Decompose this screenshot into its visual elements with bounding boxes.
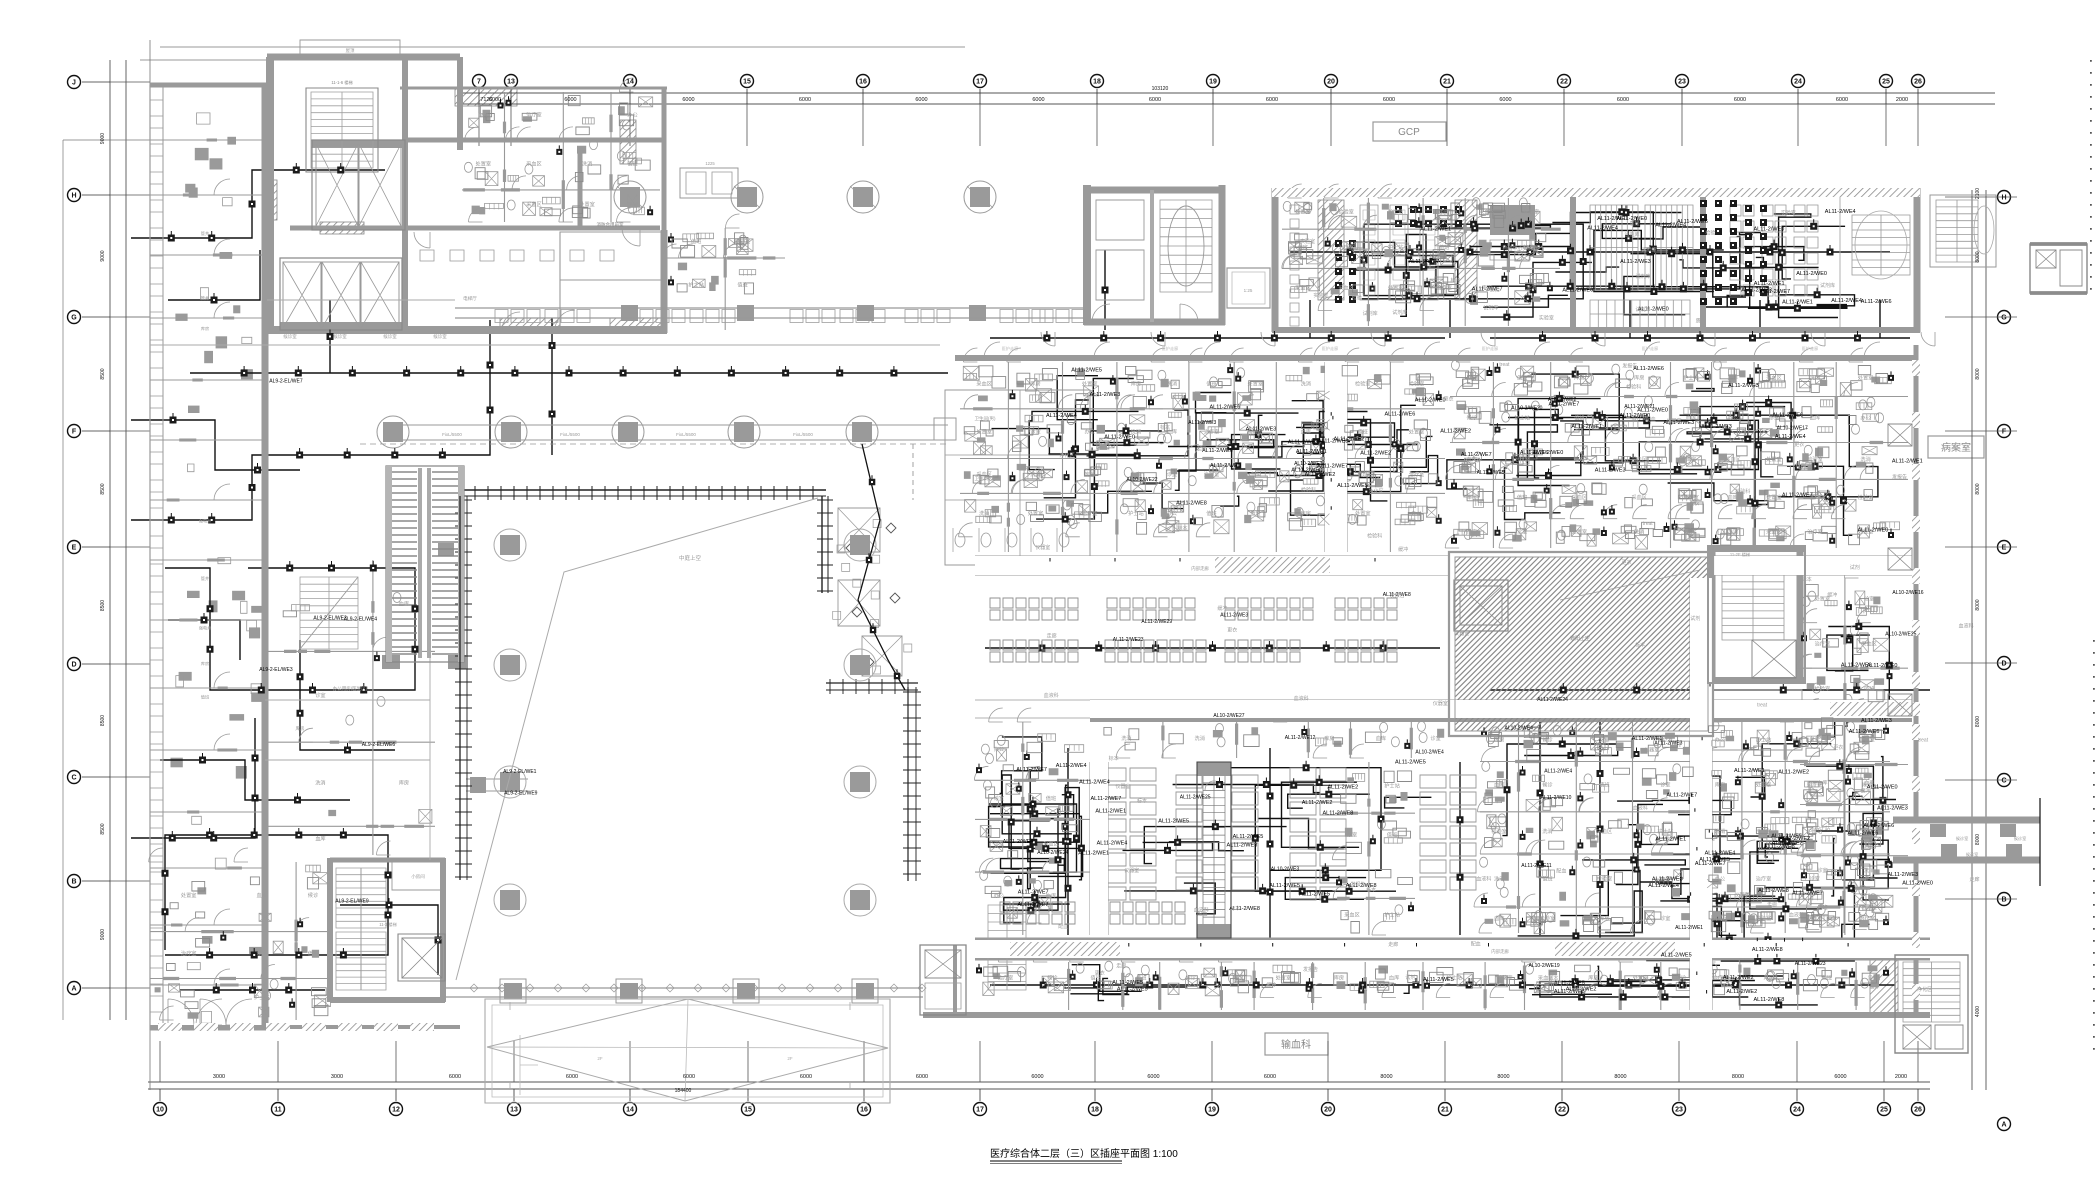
- svg-text:处置室: 处置室: [1355, 509, 1371, 517]
- svg-text:中庭上空: 中庭上空: [679, 554, 702, 562]
- svg-text:AL11-2/WE12: AL11-2/WE12: [1285, 735, 1316, 741]
- svg-text:AL11-2/WE6: AL11-2/WE6: [1848, 831, 1879, 837]
- svg-text:库房: 库房: [1715, 781, 1725, 789]
- svg-text:库房: 库房: [1030, 379, 1040, 387]
- svg-text:AL11-2/WE8: AL11-2/WE8: [1288, 440, 1319, 446]
- svg-text:检验: 检验: [1430, 253, 1440, 260]
- svg-text:AL11-2/WE4: AL11-2/WE4: [1056, 763, 1087, 769]
- svg-text:AL10-2/WE3: AL10-2/WE3: [1271, 867, 1300, 873]
- svg-text:AL11-2/WE4: AL11-2/WE4: [1544, 769, 1572, 775]
- svg-text:21: 21: [1441, 1107, 1449, 1114]
- svg-text:AL11-2/WE1: AL11-2/WE1: [1420, 227, 1451, 233]
- svg-text:AL11-2/WE1: AL11-2/WE1: [1782, 300, 1813, 306]
- svg-text:treat: treat: [1499, 362, 1510, 368]
- svg-text:库房: 库房: [627, 200, 637, 208]
- svg-text:AL11-2/WE5: AL11-2/WE5: [1477, 470, 1505, 476]
- svg-text:3000: 3000: [213, 1074, 225, 1080]
- svg-text:洗消: 洗消: [315, 778, 325, 786]
- svg-text:AL10-2/WE2: AL10-2/WE2: [1548, 397, 1577, 403]
- svg-text:治疗室: 治疗室: [526, 110, 542, 118]
- svg-text:AL11-2/WE2: AL11-2/WE2: [1334, 437, 1365, 443]
- svg-text:15: 15: [743, 79, 751, 86]
- svg-text:AL11-2/WE1: AL11-2/WE1: [1571, 424, 1602, 430]
- svg-text:候诊: 候诊: [1467, 414, 1478, 422]
- svg-text:库房: 库房: [1634, 373, 1644, 381]
- svg-text:洗消: 洗消: [1860, 455, 1870, 463]
- svg-text:8500: 8500: [100, 368, 106, 379]
- svg-text:诊室: 诊室: [1660, 914, 1670, 922]
- svg-text:AL11-2/WE4: AL11-2/WE4: [1046, 413, 1077, 419]
- svg-text:8000: 8000: [1975, 251, 1981, 262]
- svg-text:AL11-2/WE1: AL11-2/WE1: [1754, 281, 1785, 287]
- svg-text:处置室: 处置室: [1858, 373, 1874, 381]
- svg-text:配血: 配血: [1471, 941, 1481, 948]
- svg-text:AL11-2/WE8: AL11-2/WE8: [1764, 844, 1795, 850]
- svg-text:标本: 标本: [1177, 525, 1187, 532]
- svg-text:血液科: 血液科: [1959, 622, 1974, 629]
- svg-text:GCP: GCP: [1398, 127, 1420, 138]
- svg-text:候诊室: 候诊室: [2014, 835, 2027, 842]
- svg-text:标本: 标本: [1635, 642, 1645, 649]
- svg-text:C: C: [2001, 778, 2006, 785]
- svg-text:缓冲: 缓冲: [1869, 983, 1879, 990]
- svg-text:候诊室: 候诊室: [433, 333, 447, 340]
- svg-text:AL11-2/WE23: AL11-2/WE23: [1113, 637, 1144, 643]
- svg-text:6000: 6000: [683, 1074, 695, 1080]
- svg-text:AL11-2/WE0: AL11-2/WE0: [1210, 463, 1241, 469]
- svg-text:血库: 血库: [1301, 428, 1311, 436]
- svg-text:仪器室: 仪器室: [1115, 783, 1130, 790]
- svg-text:更衣: 更衣: [1689, 500, 1699, 507]
- svg-text:候诊室: 候诊室: [1966, 851, 1979, 858]
- svg-text:诊室: 诊室: [1660, 781, 1670, 789]
- svg-text:AL10-2/WE22: AL10-2/WE22: [1126, 477, 1157, 483]
- svg-text:配血: 配血: [1197, 911, 1207, 918]
- svg-text:AL11-2/WE29: AL11-2/WE29: [1141, 619, 1172, 625]
- svg-text:16: 16: [859, 79, 867, 86]
- svg-text:更衣: 更衣: [1622, 559, 1632, 566]
- svg-text:17: 17: [976, 79, 984, 86]
- svg-text:试剂库: 试剂库: [1635, 306, 1650, 313]
- svg-text:仪器室: 仪器室: [1433, 700, 1448, 707]
- svg-text:8000: 8000: [1497, 1074, 1509, 1080]
- svg-text:检验科: 检验科: [1367, 532, 1382, 539]
- svg-text:采血区: 采血区: [1861, 639, 1877, 647]
- svg-text:AL11-2/WE2: AL11-2/WE2: [1726, 989, 1757, 995]
- svg-text:值班: 值班: [308, 949, 318, 957]
- svg-text:库房: 库房: [296, 725, 305, 732]
- svg-text:AL11-2/WE4: AL11-2/WE4: [1775, 434, 1806, 440]
- svg-text:库房: 库房: [1588, 974, 1598, 982]
- svg-text:试剂: 试剂: [1850, 564, 1860, 571]
- svg-text:采血区: 采血区: [1597, 827, 1613, 835]
- svg-text:试剂库: 试剂库: [1820, 282, 1835, 289]
- svg-text:配血: 配血: [1646, 416, 1656, 423]
- svg-text:候诊: 候诊: [1047, 974, 1058, 982]
- svg-text:护士站: 护士站: [1384, 782, 1400, 790]
- svg-text:处置室: 处置室: [1633, 974, 1649, 982]
- svg-text:洗消: 洗消: [1864, 866, 1874, 874]
- svg-text:值班: 值班: [1387, 830, 1397, 838]
- svg-text:试剂库: 试剂库: [1502, 221, 1517, 228]
- svg-text:AL11-2/WE0: AL11-2/WE0: [1104, 435, 1135, 441]
- svg-text:候诊: 候诊: [1817, 733, 1828, 741]
- svg-text:值班: 值班: [1206, 509, 1216, 517]
- svg-text:6000: 6000: [1032, 97, 1044, 103]
- svg-text:发报告: 发报告: [1303, 966, 1318, 973]
- svg-text:检验室: 检验室: [1756, 914, 1772, 922]
- svg-text:采血区: 采血区: [1766, 373, 1782, 381]
- svg-text:医护走廊: 医护走廊: [1802, 345, 1819, 352]
- svg-text:C: C: [71, 775, 76, 782]
- svg-text:AL11-2/WE3: AL11-2/WE3: [1595, 468, 1626, 474]
- svg-text:检验: 检验: [1450, 277, 1460, 284]
- svg-text:AL11-2/WE6: AL11-2/WE6: [1385, 411, 1416, 417]
- svg-text:走廊: 走廊: [1388, 941, 1398, 948]
- svg-text:AL11-2/WE7: AL11-2/WE7: [1695, 861, 1726, 867]
- svg-text:值班: 值班: [1517, 373, 1527, 381]
- svg-text:8500: 8500: [100, 483, 106, 494]
- svg-text:9000: 9000: [100, 250, 106, 261]
- svg-text:发报告: 发报告: [1622, 362, 1637, 369]
- svg-text:AL11-2/WE7: AL11-2/WE7: [1759, 289, 1790, 295]
- svg-text:AL11-2/WE6: AL11-2/WE6: [1202, 448, 1233, 454]
- svg-text:1225: 1225: [705, 161, 715, 166]
- svg-text:采血区: 采血区: [1725, 455, 1741, 463]
- svg-text:处置室: 处置室: [1409, 428, 1425, 436]
- svg-text:24: 24: [1794, 79, 1802, 86]
- svg-text:库房: 库房: [1324, 734, 1334, 742]
- svg-text:20: 20: [1324, 1107, 1332, 1114]
- svg-text:候诊室: 候诊室: [1956, 835, 1969, 842]
- svg-text:AL11-2/WE3: AL11-2/WE3: [1887, 872, 1918, 878]
- svg-text:treat: treat: [1643, 521, 1654, 527]
- svg-text:办公: 办公: [1411, 509, 1421, 517]
- svg-text:实验室: 实验室: [1642, 247, 1657, 254]
- svg-text:洗消: 洗消: [582, 159, 592, 167]
- svg-text:洗消: 洗消: [979, 509, 989, 517]
- svg-text:治疗室: 治疗室: [1436, 284, 1452, 292]
- svg-text:AL9-2-EL/WE3: AL9-2-EL/WE3: [259, 667, 293, 673]
- svg-text:值班: 值班: [1439, 243, 1449, 251]
- svg-text:AL11-2/WE2: AL11-2/WE2: [1302, 800, 1333, 806]
- svg-text:检验室: 检验室: [1409, 379, 1425, 387]
- svg-text:内部走廊: 内部走廊: [1191, 565, 1209, 572]
- svg-text:诊室: 诊室: [1686, 527, 1696, 535]
- svg-text:诊室: 诊室: [1809, 875, 1819, 883]
- svg-text:AL10-2/WE3: AL10-2/WE3: [1294, 461, 1323, 467]
- svg-text:AL11-2/WE7: AL11-2/WE7: [1018, 902, 1049, 908]
- svg-text:走廊: 走廊: [1767, 902, 1777, 909]
- svg-text:质检: 质检: [1630, 220, 1640, 227]
- svg-text:AL11-2/WE0: AL11-2/WE0: [1858, 527, 1889, 533]
- svg-text:洗消: 洗消: [1030, 470, 1040, 478]
- svg-text:诊室: 诊室: [1864, 594, 1874, 602]
- svg-text:AL11-2/WE5: AL11-2/WE5: [1337, 483, 1368, 489]
- svg-text:办公: 办公: [1860, 414, 1870, 422]
- svg-text:AL11-2/WE5: AL11-2/WE5: [1395, 760, 1426, 766]
- svg-text:E: E: [2002, 545, 2007, 552]
- svg-text:AL11-2/WE4: AL11-2/WE4: [1648, 883, 1679, 889]
- svg-text:走廊: 走廊: [1116, 962, 1126, 969]
- svg-text:AL9-2-EL/WE9: AL9-2-EL/WE9: [335, 899, 369, 905]
- svg-text:输血科: 输血科: [1281, 1038, 1311, 1051]
- svg-text:AL10-2/WE20: AL10-2/WE20: [1511, 406, 1542, 412]
- svg-text:AL11-2/WE21: AL11-2/WE21: [1624, 404, 1655, 410]
- svg-text:采血区: 采血区: [1479, 208, 1495, 216]
- svg-text:实验室: 实验室: [1300, 238, 1315, 245]
- svg-text:缓冲: 缓冲: [1827, 592, 1837, 599]
- svg-text:AL11-2/WE3: AL11-2/WE3: [1701, 424, 1732, 430]
- svg-text:办公: 办公: [1728, 414, 1738, 422]
- svg-text:洗消: 洗消: [1195, 734, 1205, 742]
- svg-text:8000: 8000: [1380, 1074, 1392, 1080]
- svg-text:3000: 3000: [331, 1074, 343, 1080]
- svg-text:更衣: 更衣: [1095, 970, 1105, 977]
- svg-text:值班: 值班: [1599, 781, 1609, 789]
- svg-text:检验科: 检验科: [1626, 384, 1641, 391]
- svg-text:诊室: 诊室: [1517, 527, 1527, 535]
- svg-text:AL9-2-EL/WE2: AL9-2-EL/WE2: [313, 615, 347, 621]
- svg-text:采血区: 采血区: [1766, 527, 1782, 535]
- svg-text:AL11-2/WE8: AL11-2/WE8: [1752, 947, 1783, 953]
- svg-text:遮阳上空: 遮阳上空: [1570, 635, 1590, 642]
- svg-text:值班: 值班: [691, 237, 701, 245]
- svg-text:检验: 检验: [1352, 295, 1362, 302]
- svg-text:6000: 6000: [566, 1074, 578, 1080]
- svg-text:17: 17: [976, 1107, 984, 1114]
- svg-text:14: 14: [626, 1107, 634, 1114]
- svg-text:血库: 血库: [1817, 779, 1827, 787]
- svg-text:AL11-2/WE6: AL11-2/WE6: [1841, 662, 1872, 668]
- svg-text:AL10-2/WE4: AL10-2/WE4: [1505, 726, 1534, 732]
- svg-text:处置室: 处置室: [1295, 208, 1311, 216]
- svg-text:22: 22: [1558, 1107, 1566, 1114]
- svg-text:AL11-2/WE0: AL11-2/WE0: [1867, 785, 1898, 791]
- svg-text:8000: 8000: [1975, 483, 1981, 494]
- svg-text:血库: 血库: [478, 110, 488, 118]
- svg-text:检验室: 检验室: [1756, 827, 1772, 835]
- svg-text:AL11-2/WE1: AL11-2/WE1: [1078, 851, 1109, 857]
- svg-text:6000: 6000: [1264, 1074, 1276, 1080]
- svg-text:A: A: [2001, 1122, 2006, 1129]
- svg-text:6000: 6000: [1031, 1074, 1043, 1080]
- svg-text:诊室: 诊室: [1467, 527, 1477, 535]
- svg-text:检验室: 检验室: [1861, 903, 1877, 911]
- svg-text:J: J: [72, 80, 76, 87]
- svg-text:办公: 办公: [994, 892, 1004, 900]
- svg-text:6000: 6000: [799, 97, 811, 103]
- svg-text:AL11-2/WE4: AL11-2/WE4: [1831, 298, 1862, 304]
- svg-text:试剂库: 试剂库: [1483, 305, 1498, 312]
- svg-text:AL11-2/WE5: AL11-2/WE5: [1299, 891, 1330, 897]
- svg-text:AL11-2/WE1: AL11-2/WE1: [1296, 449, 1327, 455]
- svg-text:洗消: 洗消: [1634, 527, 1644, 535]
- svg-text:6000: 6000: [1383, 97, 1395, 103]
- svg-text:AL11-2/WE0: AL11-2/WE0: [1796, 271, 1827, 277]
- svg-text:AL11-2/WE4: AL11-2/WE4: [1825, 209, 1856, 215]
- svg-text:AL11-2/WE6: AL11-2/WE6: [1562, 287, 1593, 293]
- svg-text:采血区: 采血区: [1295, 284, 1311, 292]
- svg-text:护士站: 护士站: [688, 280, 704, 288]
- svg-text:AL11-2/WE1: AL11-2/WE1: [1734, 768, 1765, 774]
- svg-text:检验室: 检验室: [1540, 914, 1556, 922]
- svg-text:23: 23: [1678, 79, 1686, 86]
- svg-text:管井: 管井: [201, 295, 209, 302]
- svg-text:AL11-2/WE0: AL11-2/WE0: [1902, 880, 1933, 886]
- svg-text:血库: 血库: [1376, 734, 1386, 742]
- svg-text:血库: 血库: [399, 600, 409, 608]
- svg-text:检验室: 检验室: [1597, 875, 1613, 883]
- svg-text:处置室: 处置室: [1683, 493, 1699, 501]
- svg-text:处置室: 处置室: [1766, 455, 1782, 463]
- svg-text:1:25: 1:25: [1244, 288, 1253, 293]
- svg-text:检验室: 检验室: [1338, 208, 1354, 216]
- svg-text:FixL/5500: FixL/5500: [560, 432, 580, 437]
- svg-text:AL9-2-EL/WE4: AL9-2-EL/WE4: [344, 616, 378, 622]
- svg-text:走廊: 走廊: [1196, 445, 1206, 452]
- svg-text:AL11-2/WE8: AL11-2/WE8: [1176, 501, 1207, 507]
- svg-text:7120: 7120: [480, 97, 492, 103]
- svg-text:库房: 库房: [1085, 470, 1095, 478]
- svg-text:AL11-2/WE5: AL11-2/WE5: [1071, 368, 1102, 374]
- svg-text:血库: 血库: [1389, 974, 1399, 982]
- svg-text:洗消: 洗消: [1167, 379, 1177, 387]
- svg-text:6000: 6000: [1266, 97, 1278, 103]
- svg-text:值班: 值班: [1206, 379, 1216, 387]
- svg-text:护士站: 护士站: [1514, 414, 1530, 422]
- svg-text:采血区: 采血区: [1043, 840, 1059, 848]
- svg-text:8000: 8000: [1975, 834, 1981, 845]
- svg-text:值班: 值班: [1817, 903, 1827, 911]
- svg-text:处置室: 处置室: [1388, 284, 1404, 292]
- svg-text:值班: 值班: [1574, 414, 1584, 422]
- svg-text:26: 26: [1914, 1107, 1922, 1114]
- svg-text:9000: 9000: [100, 929, 106, 940]
- svg-text:缓冲: 缓冲: [1266, 981, 1276, 988]
- svg-text:配血: 配血: [1573, 985, 1583, 992]
- svg-text:采血区: 采血区: [1338, 284, 1354, 292]
- svg-text:仪器室: 仪器室: [1454, 630, 1469, 637]
- svg-text:小房间: 小房间: [411, 873, 425, 880]
- svg-text:治疗室: 治疗室: [1815, 639, 1831, 647]
- svg-text:库房: 库房: [1334, 974, 1344, 982]
- svg-text:治疗室: 治疗室: [1204, 470, 1220, 478]
- svg-text:治疗室: 治疗室: [1756, 875, 1772, 883]
- svg-text:AL11-2/WE10: AL11-2/WE10: [1541, 795, 1572, 801]
- svg-text:AL11-2/WE7: AL11-2/WE7: [1091, 796, 1122, 802]
- svg-text:2100: 2100: [1975, 188, 1981, 199]
- svg-text:AL10-2/WE4: AL10-2/WE4: [1415, 750, 1444, 756]
- svg-text:AL11-2/WE1: AL11-2/WE1: [1095, 808, 1126, 814]
- svg-text:试剂: 试剂: [1690, 615, 1700, 622]
- svg-text:检验室: 检验室: [1497, 974, 1513, 982]
- svg-text:检验室: 检验室: [1523, 243, 1539, 251]
- svg-text:洗消: 洗消: [1728, 527, 1738, 535]
- svg-text:AL10-2/WE27: AL10-2/WE27: [1213, 713, 1244, 719]
- svg-text:FixL/5500: FixL/5500: [676, 432, 696, 437]
- svg-text:6000: 6000: [800, 1074, 812, 1080]
- svg-text:处置室: 处置室: [976, 428, 992, 436]
- svg-text:标本: 标本: [1366, 886, 1376, 893]
- svg-text:F: F: [2002, 429, 2007, 436]
- svg-text:13: 13: [510, 1107, 518, 1114]
- svg-text:消防合用前室: 消防合用前室: [597, 221, 624, 228]
- svg-text:走廊: 走廊: [1969, 876, 1979, 883]
- svg-text:采血区: 采血区: [1344, 911, 1360, 919]
- svg-text:11-1-6 楼梯: 11-1-6 楼梯: [331, 79, 352, 86]
- svg-text:检验室: 检验室: [1858, 493, 1874, 501]
- svg-text:14: 14: [626, 79, 634, 86]
- svg-text:22: 22: [1560, 79, 1568, 86]
- svg-text:8500: 8500: [100, 600, 106, 611]
- svg-text:B: B: [2001, 897, 2006, 904]
- svg-text:AL11-2/WE8: AL11-2/WE8: [1758, 888, 1789, 894]
- svg-text:净化区: 净化区: [1368, 488, 1383, 495]
- svg-text:AL10-2/WE19: AL10-2/WE19: [1529, 963, 1560, 969]
- svg-text:2F: 2F: [597, 1056, 603, 1061]
- svg-text:医护走廊: 医护走廊: [1162, 345, 1179, 352]
- svg-text:候诊室: 候诊室: [383, 333, 397, 340]
- svg-text:诊室: 诊室: [1599, 736, 1609, 744]
- svg-text:值班: 值班: [1358, 428, 1368, 436]
- svg-text:13: 13: [507, 79, 515, 86]
- svg-text:血库: 血库: [315, 835, 325, 843]
- svg-text:26: 26: [1914, 79, 1922, 86]
- svg-text:A: A: [71, 986, 76, 993]
- svg-text:8000: 8000: [1732, 1074, 1744, 1080]
- svg-text:103120: 103120: [1152, 86, 1169, 92]
- svg-text:库房: 库房: [1467, 493, 1477, 501]
- svg-text:血库: 血库: [257, 891, 267, 899]
- svg-text:AL11-2/WE1: AL11-2/WE1: [1655, 836, 1686, 842]
- svg-text:AL11-2/WE7: AL11-2/WE7: [1461, 452, 1492, 458]
- svg-text:库房: 库房: [1301, 509, 1311, 517]
- svg-text:AL11-2/WE8: AL11-2/WE8: [1227, 842, 1258, 848]
- svg-text:处置室: 处置室: [1276, 974, 1292, 982]
- svg-text:血液科: 血液科: [1044, 692, 1059, 699]
- svg-text:值班: 值班: [1439, 208, 1449, 216]
- svg-text:配血: 配血: [1556, 867, 1566, 874]
- svg-text:处置室: 处置室: [1807, 914, 1823, 922]
- svg-text:洗消: 洗消: [1810, 373, 1820, 381]
- svg-text:检验室: 检验室: [1807, 455, 1823, 463]
- svg-text:6000: 6000: [1617, 97, 1629, 103]
- svg-text:4000: 4000: [1975, 1006, 1981, 1017]
- svg-text:标本: 标本: [1137, 798, 1147, 805]
- svg-text:候诊: 候诊: [1676, 974, 1687, 982]
- svg-text:AL11-2/WE4: AL11-2/WE4: [1587, 225, 1618, 231]
- svg-text:检验: 检验: [1705, 229, 1715, 236]
- svg-text:AL11-2/WE23: AL11-2/WE23: [1795, 961, 1826, 967]
- svg-text:AL11-2/WE7: AL11-2/WE7: [1782, 493, 1813, 499]
- svg-text:电梯厅: 电梯厅: [463, 295, 477, 302]
- svg-text:治疗室: 治疗室: [1082, 509, 1098, 517]
- svg-text:AL11-2/WE3: AL11-2/WE3: [1188, 420, 1216, 426]
- svg-text:2000: 2000: [1896, 97, 1908, 103]
- svg-text:洗消: 洗消: [1494, 875, 1504, 883]
- svg-text:值班: 值班: [201, 694, 209, 701]
- svg-text:6000: 6000: [564, 97, 576, 103]
- svg-text:候诊: 候诊: [1542, 781, 1553, 789]
- svg-text:25: 25: [1882, 79, 1890, 86]
- svg-text:11: 11: [274, 1107, 282, 1114]
- svg-text:卫生间(男): 卫生间(男): [975, 415, 996, 422]
- svg-text:11-2F 楼梯: 11-2F 楼梯: [1730, 551, 1750, 558]
- svg-text:管井: 管井: [201, 230, 209, 237]
- svg-text:标本: 标本: [1230, 905, 1240, 912]
- svg-text:采血区: 采血区: [976, 379, 992, 387]
